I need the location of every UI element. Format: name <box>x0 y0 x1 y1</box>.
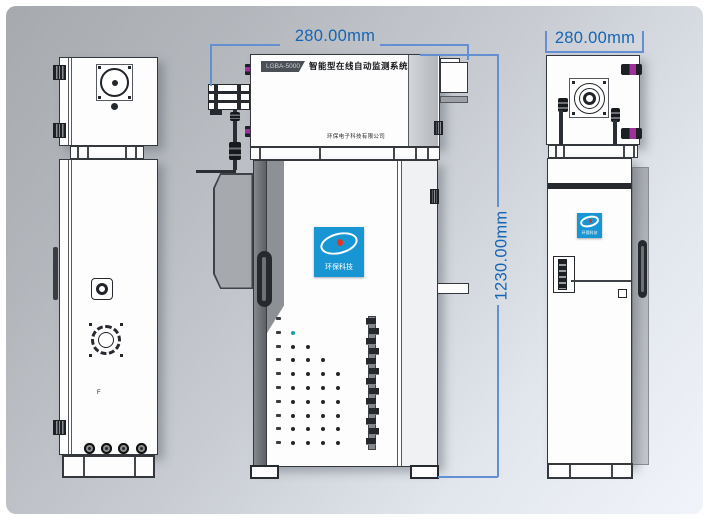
dimension-extension-line <box>420 54 498 56</box>
left-cabinet-joint-band <box>70 146 144 159</box>
left-cabinet-base <box>62 455 155 478</box>
hinge <box>434 121 443 135</box>
terminal-bracket <box>553 256 575 293</box>
port-row-label <box>276 400 281 403</box>
dimension-line <box>546 51 643 53</box>
logo-caption: 环保科技 <box>314 262 364 272</box>
terminal-block <box>366 438 376 445</box>
dimension-line <box>497 305 499 477</box>
right-cabinet-base <box>547 463 633 479</box>
terminal-block <box>369 408 379 415</box>
shelf-line <box>571 280 631 282</box>
terminal-block <box>369 368 379 375</box>
port-dot <box>291 386 295 390</box>
brand-logo: 环保科技 <box>577 213 602 238</box>
port-dot <box>321 372 325 376</box>
port-row-label <box>276 414 281 417</box>
side-pump-cover <box>213 173 253 289</box>
cabinet-shadow-panel <box>632 167 649 465</box>
port-dot <box>306 400 310 404</box>
hinge <box>53 123 66 138</box>
port-row-label <box>276 358 281 361</box>
port-dot <box>306 414 310 418</box>
terminal-block <box>366 318 376 325</box>
left-cabinet-view: F <box>53 54 163 482</box>
cabinet-top-rail <box>548 183 631 189</box>
port-dot <box>291 400 295 404</box>
purple-connector <box>621 64 642 75</box>
port-row-label <box>276 317 281 320</box>
port-dot <box>336 414 340 418</box>
port-dot <box>291 358 295 362</box>
model-badge: LGBA-5000 <box>261 61 305 72</box>
terminal-block <box>366 398 376 405</box>
terminal-block <box>366 418 376 425</box>
logo-caption: 环保科技 <box>577 230 602 236</box>
cabinet-left-bevel <box>267 161 284 333</box>
panel-label: F <box>97 390 101 396</box>
hinge <box>430 189 439 204</box>
company-line: 环保电子科技有限公司 <box>327 132 385 140</box>
side-latch-strip <box>53 247 58 300</box>
port-dot <box>321 441 325 445</box>
port-dot <box>306 345 310 349</box>
dimension-height: 1230.00mm <box>493 196 512 316</box>
drawing-scene: F LGBA-5000 <box>0 0 709 520</box>
door-seam <box>68 58 72 145</box>
left-cabinet-lower-box: F <box>59 159 158 455</box>
port-dot-grid <box>276 315 348 455</box>
front-lower-cabinet: 环保科技 <box>253 160 438 467</box>
logo-dot-icon <box>589 219 592 223</box>
side-mount-bar <box>437 283 469 294</box>
clip <box>618 289 627 298</box>
port-dot <box>291 372 295 376</box>
port-dot <box>306 441 310 445</box>
bracket-foot <box>210 110 222 115</box>
terminal-block <box>366 358 376 365</box>
fan-hub <box>112 80 118 86</box>
port-dot <box>336 400 340 404</box>
pipe-fitting <box>230 112 240 121</box>
logo-dot-icon <box>337 239 343 246</box>
brand-logo: 环保科技 <box>314 227 364 277</box>
analyzer-top-box: LGBA-5000 智能型在线自动监测系统 环保电子科技有限公司 <box>250 54 440 147</box>
vent-fan-icon <box>96 64 133 101</box>
port-row-label <box>276 441 281 444</box>
port-row-label <box>276 427 281 430</box>
terminal-block <box>366 378 376 385</box>
foot-bolt-icon <box>101 443 112 454</box>
port-dot <box>321 427 325 431</box>
dimension-extension-line <box>545 31 547 53</box>
terminal-block <box>366 338 376 345</box>
door-handle <box>257 251 272 307</box>
terminal-blocks <box>366 318 380 450</box>
port-row-label <box>276 331 281 334</box>
machine-foot <box>250 465 279 479</box>
dimension-front-width: 280.00mm <box>280 27 390 46</box>
port-dot <box>321 358 325 362</box>
hinge <box>53 65 66 80</box>
port-dot <box>321 386 325 390</box>
port-dot <box>291 441 295 445</box>
port-dot <box>306 358 310 362</box>
right-cabinet-view: 环保科技 <box>544 55 656 481</box>
port-dot <box>291 427 295 431</box>
terminal-strip <box>558 259 567 290</box>
pipe-valve <box>229 142 241 160</box>
port-dot <box>321 414 325 418</box>
terminal-block <box>369 428 379 435</box>
foot-bolt-icon <box>136 443 147 454</box>
port-row-label <box>276 386 281 389</box>
port-dot <box>291 414 295 418</box>
port-dot <box>336 386 340 390</box>
dimension-line <box>211 44 280 46</box>
port-dot <box>291 331 295 335</box>
door-handle <box>638 240 647 298</box>
dimension-extension-line <box>438 476 498 478</box>
product-title: 智能型在线自动监测系统 <box>309 60 408 72</box>
technical-drawing-page: { "drawing": { "type": "engineering-dime… <box>0 0 709 520</box>
port-dot <box>321 400 325 404</box>
left-cabinet-top-box <box>59 57 158 146</box>
terminal-block <box>369 388 379 395</box>
cable-gland-icon <box>91 278 113 300</box>
port-dot <box>336 427 340 431</box>
exhaust-fan-icon <box>90 324 122 356</box>
foot-bolt-icon <box>84 443 95 454</box>
right-lower-cabinet: 环保科技 <box>547 158 632 465</box>
dimension-line <box>380 44 468 46</box>
port-dot <box>306 427 310 431</box>
port-dot <box>291 345 295 349</box>
cabinet-side-face <box>402 161 437 466</box>
port-dot <box>336 441 340 445</box>
dimension-extension-line <box>642 31 644 53</box>
terminal-block <box>369 348 379 355</box>
sampling-bracket <box>208 84 250 110</box>
joint-band <box>548 145 638 158</box>
fan-icon <box>569 78 609 118</box>
machine-foot <box>410 465 439 479</box>
drain-plug-icon <box>111 103 118 110</box>
dimension-extension-line <box>210 44 212 86</box>
terminal-block <box>369 328 379 335</box>
door-seam <box>68 160 72 454</box>
port-row-label <box>276 372 281 375</box>
port-dot <box>306 372 310 376</box>
cabinet-left-edge <box>254 161 267 466</box>
port-row-label <box>276 345 281 348</box>
rear-connector-box <box>440 62 468 93</box>
port-dot <box>306 386 310 390</box>
front-view: LGBA-5000 智能型在线自动监测系统 环保电子科技有限公司 <box>196 54 488 482</box>
pipe-elbow <box>196 170 236 173</box>
dimension-side-width: 280.00mm <box>548 29 642 48</box>
purple-connector <box>621 128 642 139</box>
hinge <box>53 420 66 435</box>
foot-bolt-icon <box>118 443 129 454</box>
joint-band <box>250 147 440 160</box>
dimension-extension-line <box>467 44 469 60</box>
rear-shelf <box>440 96 468 103</box>
dimension-line <box>497 54 499 207</box>
port-dot <box>336 372 340 376</box>
